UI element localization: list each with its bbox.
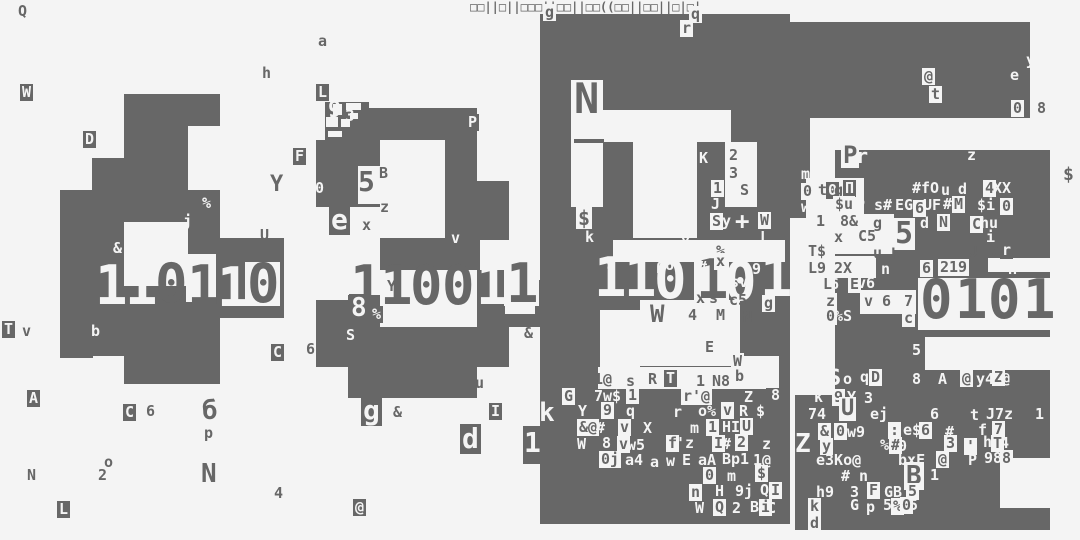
noise-glyph: v <box>864 294 873 309</box>
noise-glyph: n <box>879 261 892 278</box>
blob-1-digit: 1 <box>217 266 248 310</box>
noise-glyph: v <box>721 402 734 419</box>
noise-glyph: I <box>489 403 502 420</box>
noise-glyph: 3 <box>729 166 738 181</box>
noise-glyph: S <box>346 328 355 343</box>
noise-glyph: A <box>938 372 947 387</box>
noise-glyph: a4 <box>625 453 643 468</box>
noise-glyph: e <box>1010 68 1019 83</box>
blob-1-block <box>92 318 220 356</box>
noise-glyph: k <box>585 230 594 245</box>
noise-glyph: g <box>762 295 775 312</box>
noise-glyph: @ <box>1001 371 1010 386</box>
blob-1-block <box>60 318 93 358</box>
noise-glyph: 0 <box>1011 100 1024 117</box>
noise-glyph: 7 <box>904 294 913 309</box>
noise-glyph: B <box>379 166 388 181</box>
noise-glyph: W <box>650 302 664 326</box>
blob-1-block <box>92 158 188 190</box>
noise-glyph: @ <box>922 68 935 85</box>
noise-glyph: o% <box>698 404 716 419</box>
noise-glyph: y <box>722 214 731 229</box>
noise-glyph: a <box>318 34 327 49</box>
noise-glyph: 9 <box>601 402 614 419</box>
noise-glyph: r <box>673 405 682 420</box>
blob-1-digit: 1 <box>95 264 126 308</box>
noise-glyph: e3Ko@ <box>816 453 861 468</box>
noise-glyph: $i <box>977 198 995 213</box>
blob-2-block <box>348 363 477 398</box>
noise-glyph: L <box>57 501 70 518</box>
noise-glyph: x <box>362 218 371 233</box>
noise-glyph: 8 <box>349 294 369 322</box>
noise-glyph: p <box>204 426 213 441</box>
noise-glyph: r <box>1000 242 1013 259</box>
noise-glyph: Y <box>578 404 587 419</box>
noise-glyph: P <box>968 453 977 468</box>
noise-glyph: 6 <box>919 422 932 439</box>
noise-glyph: N8 <box>712 374 730 389</box>
noise-glyph: J <box>711 197 720 212</box>
noise-glyph: 8 <box>771 388 780 403</box>
blob-1-digit: 1 <box>125 264 156 308</box>
noise-glyph: W <box>758 212 771 229</box>
noise-glyph: U <box>260 228 269 243</box>
noise-glyph: 7 <box>990 244 999 259</box>
noise-glyph: EG <box>895 198 913 213</box>
noise-glyph: 9 <box>606 257 615 272</box>
noise-glyph: N <box>27 468 36 483</box>
noise-glyph: q <box>626 404 635 419</box>
noise-glyph: j <box>183 214 192 229</box>
noise-glyph: d <box>920 216 929 231</box>
noise-glyph: Ω <box>681 230 690 245</box>
blob-1-digit: 0 <box>155 262 186 306</box>
noise-glyph: % <box>202 196 211 211</box>
noise-glyph: @ <box>353 499 366 516</box>
noise-glyph: G <box>562 388 575 405</box>
noise-glyph: B <box>750 500 759 515</box>
blob-3-hole <box>603 110 731 142</box>
noise-glyph: a <box>650 455 659 470</box>
noise-glyph: z <box>762 437 771 452</box>
noise-glyph: P <box>466 114 479 131</box>
noise-glyph: N <box>937 214 950 231</box>
noise-glyph: # <box>698 260 707 275</box>
noise-glyph: T <box>2 321 15 338</box>
noise-glyph: u <box>873 246 882 261</box>
noise-glyph: %S <box>834 309 852 324</box>
blob-3-digit: 1 <box>624 256 655 300</box>
blob-1-block <box>124 126 188 158</box>
noise-glyph: T <box>664 370 677 387</box>
noise-glyph: D <box>83 131 96 148</box>
noise-glyph: m <box>801 167 810 182</box>
noise-glyph: 74 <box>808 407 826 422</box>
noise-glyph: + <box>735 209 749 233</box>
noise-glyph: 8 <box>1000 450 1013 467</box>
noise-glyph: K <box>699 151 708 166</box>
noise-glyph: 'z <box>676 436 694 451</box>
noise-glyph: U <box>839 397 856 421</box>
noise-glyph: 0j <box>599 451 621 468</box>
noise-glyph: A <box>27 390 40 407</box>
noise-glyph: c5 <box>729 293 747 308</box>
noise-glyph: z <box>967 148 976 163</box>
noise-glyph: Y <box>387 279 396 294</box>
noise-glyph: x <box>834 230 843 245</box>
noise-glyph: C <box>271 344 284 361</box>
noise-glyph: h <box>262 66 271 81</box>
noise-glyph: & <box>524 326 533 341</box>
noise-glyph: 2 <box>729 148 738 163</box>
noise-glyph: XX <box>993 181 1011 196</box>
noise-glyph: 6 <box>882 294 891 309</box>
noise-glyph: ¬ <box>744 236 755 254</box>
noise-glyph: r <box>856 146 868 166</box>
noise-glyph: Q <box>760 483 769 498</box>
blob-2-block <box>348 327 477 365</box>
noise-glyph: d <box>808 515 821 532</box>
noise-glyph: 3 <box>864 391 873 406</box>
noise-glyph: C <box>123 404 136 421</box>
noise-glyph: б <box>202 398 218 424</box>
noise-glyph: v <box>451 231 460 246</box>
noise-glyph: k <box>891 247 900 262</box>
noise-glyph: $ <box>826 364 842 390</box>
noise-glyph: b <box>733 368 746 385</box>
noise-glyph: 6 <box>146 404 155 419</box>
noise-glyph: e <box>329 205 350 235</box>
noise-glyph: k <box>539 400 555 426</box>
noise-glyph: 1 <box>816 214 825 229</box>
noise-glyph: F <box>293 148 306 165</box>
noise-glyph: $u <box>833 196 855 213</box>
noise-glyph: g <box>543 4 556 21</box>
noise-glyph: 4 <box>274 486 283 501</box>
noise-glyph: C5 <box>858 229 876 244</box>
noise-glyph: 2 <box>732 501 741 516</box>
noise-glyph: U <box>968 245 977 260</box>
noise-glyph: # <box>841 469 850 484</box>
noise-glyph: Bp1 <box>722 452 749 467</box>
noise-glyph: 8 <box>602 436 611 451</box>
noise-glyph: p <box>866 500 875 515</box>
noise-glyph: 2 <box>735 434 748 451</box>
noise-glyph: 5 <box>912 343 921 358</box>
noise-glyph: W <box>695 501 704 516</box>
blob-1-block <box>124 190 188 222</box>
noise-glyph: ↗ <box>893 285 903 301</box>
binary-title: □□||□||□□□||□□||□□((□□||□□||□|□| <box>470 1 701 13</box>
noise-glyph: D <box>869 369 882 386</box>
blob-1-block <box>124 94 220 126</box>
noise-glyph: o <box>843 372 852 387</box>
noise-glyph: L9 <box>808 261 826 276</box>
noise-glyph: Q <box>713 499 726 516</box>
noise-glyph: v <box>22 324 31 339</box>
noise-glyph: U <box>688 213 697 228</box>
noise-glyph: 3 <box>345 108 355 124</box>
noise-glyph: F <box>867 482 880 499</box>
noise-glyph: z <box>380 200 389 215</box>
noise-glyph: 0 <box>834 423 847 440</box>
noise-glyph: N <box>201 461 217 487</box>
noise-glyph: v6 <box>857 276 875 291</box>
noise-glyph: x <box>714 253 727 270</box>
noise-glyph: 1@ <box>594 372 612 387</box>
noise-glyph: W <box>20 84 33 101</box>
noise-glyph: b <box>91 324 100 339</box>
noise-glyph: Z <box>795 431 811 457</box>
noise-glyph: 8 <box>1035 100 1048 117</box>
glitch-art-canvas: □□||□||□□□||□□||□□((□□||□□||□|□| 1101101… <box>0 0 1080 540</box>
noise-glyph: 3 <box>145 243 154 258</box>
noise-glyph: & <box>113 241 122 256</box>
noise-glyph: 8& <box>840 214 858 229</box>
noise-glyph: 6 <box>920 260 933 277</box>
noise-glyph: P <box>856 198 865 213</box>
noise-glyph: 219 <box>938 259 969 276</box>
noise-glyph: 5 <box>358 168 375 196</box>
noise-glyph: w <box>801 200 810 215</box>
noise-glyph: 6 <box>306 342 315 357</box>
blob-2-block <box>477 181 509 240</box>
noise-glyph: $ <box>576 207 592 229</box>
noise-glyph: d <box>460 424 481 454</box>
noise-glyph: E <box>682 453 691 468</box>
noise-glyph: W <box>577 437 586 452</box>
noise-glyph: 9 <box>328 100 341 122</box>
noise-glyph: N <box>574 78 599 120</box>
noise-glyph: L <box>760 230 769 245</box>
blob-2-digit: 1 <box>504 262 539 306</box>
noise-glyph: X <box>643 421 652 436</box>
noise-glyph: H <box>715 484 724 499</box>
noise-glyph: s# <box>874 198 892 213</box>
noise-glyph: q <box>860 370 869 385</box>
noise-glyph: u <box>475 376 484 391</box>
noise-glyph: ej <box>870 407 888 422</box>
noise-glyph: N <box>743 310 752 325</box>
noise-glyph: UF <box>923 198 941 213</box>
noise-glyph: t <box>929 86 942 103</box>
blob-2-block <box>445 140 477 240</box>
blob-4-digit: 1 <box>955 278 986 322</box>
noise-glyph: k <box>814 390 823 405</box>
noise-glyph: Q <box>18 4 27 19</box>
noise-glyph: 2X <box>834 261 852 276</box>
blob-3-hole <box>600 310 640 368</box>
blob-4-digit: 0 <box>920 278 951 322</box>
blob-3-bar <box>574 139 604 143</box>
noise-glyph: ρ6 <box>656 258 674 273</box>
noise-glyph: s <box>709 291 718 306</box>
blob-4-hole <box>925 337 1050 370</box>
noise-glyph: y <box>1026 53 1035 68</box>
noise-glyph: 5 <box>909 498 918 513</box>
noise-glyph: w9 <box>847 425 865 440</box>
noise-glyph: #fO <box>912 181 939 196</box>
blob-2-hole <box>328 131 342 137</box>
blob-2-block <box>316 300 348 367</box>
blob-3-block <box>788 22 1030 118</box>
noise-glyph: c <box>902 310 915 327</box>
blob-4-digit: 1 <box>1023 278 1054 322</box>
noise-glyph: 4 <box>688 308 697 323</box>
blob-1-digit: 0 <box>245 262 280 306</box>
noise-glyph: $ <box>755 465 768 482</box>
noise-glyph: v <box>618 419 631 436</box>
noise-glyph: 0 <box>1000 198 1013 215</box>
noise-glyph: g <box>361 396 382 426</box>
noise-glyph: βsv <box>721 275 748 290</box>
noise-glyph: 2 <box>98 468 107 483</box>
noise-glyph: I <box>769 482 782 499</box>
noise-glyph: G <box>850 498 859 513</box>
noise-glyph: % <box>880 438 889 453</box>
noise-glyph: x <box>696 291 705 306</box>
noise-glyph: R <box>648 372 657 387</box>
noise-glyph: % <box>370 306 383 323</box>
noise-glyph: M <box>716 308 725 323</box>
noise-glyph: $ <box>756 404 765 419</box>
noise-glyph: w <box>666 454 675 469</box>
noise-glyph: Y <box>270 174 283 196</box>
blob-1-block <box>124 356 220 384</box>
blob-1-digit: 1 <box>187 264 218 308</box>
noise-glyph: 1 <box>930 468 939 483</box>
blob-2-digit: 0 <box>410 264 441 308</box>
noise-glyph: 1 <box>1035 407 1044 422</box>
noise-glyph: T$ <box>808 244 826 259</box>
blob-2-digit: 1 <box>476 264 507 308</box>
noise-glyph: M <box>952 196 965 213</box>
noise-glyph: k <box>808 498 821 515</box>
noise-glyph: E <box>705 340 714 355</box>
blob-2-digit: 0 <box>442 264 473 308</box>
noise-glyph: r <box>680 20 693 37</box>
noise-glyph: 9j <box>735 484 753 499</box>
noise-glyph: $ <box>1063 166 1074 184</box>
noise-glyph: 6 <box>830 277 839 292</box>
noise-glyph: D <box>170 233 187 261</box>
noise-glyph: C <box>767 501 776 516</box>
noise-glyph: 8 <box>912 372 921 387</box>
noise-glyph: S <box>740 183 749 198</box>
noise-glyph: # <box>943 197 952 212</box>
noise-glyph: 1 <box>524 429 541 457</box>
noise-glyph: 6 <box>930 407 939 422</box>
blob-4-digit: 0 <box>988 278 1019 322</box>
noise-glyph: & <box>393 405 402 420</box>
noise-glyph: H <box>1008 262 1017 277</box>
noise-glyph: @ <box>960 370 973 387</box>
noise-glyph: 0 <box>315 181 324 196</box>
